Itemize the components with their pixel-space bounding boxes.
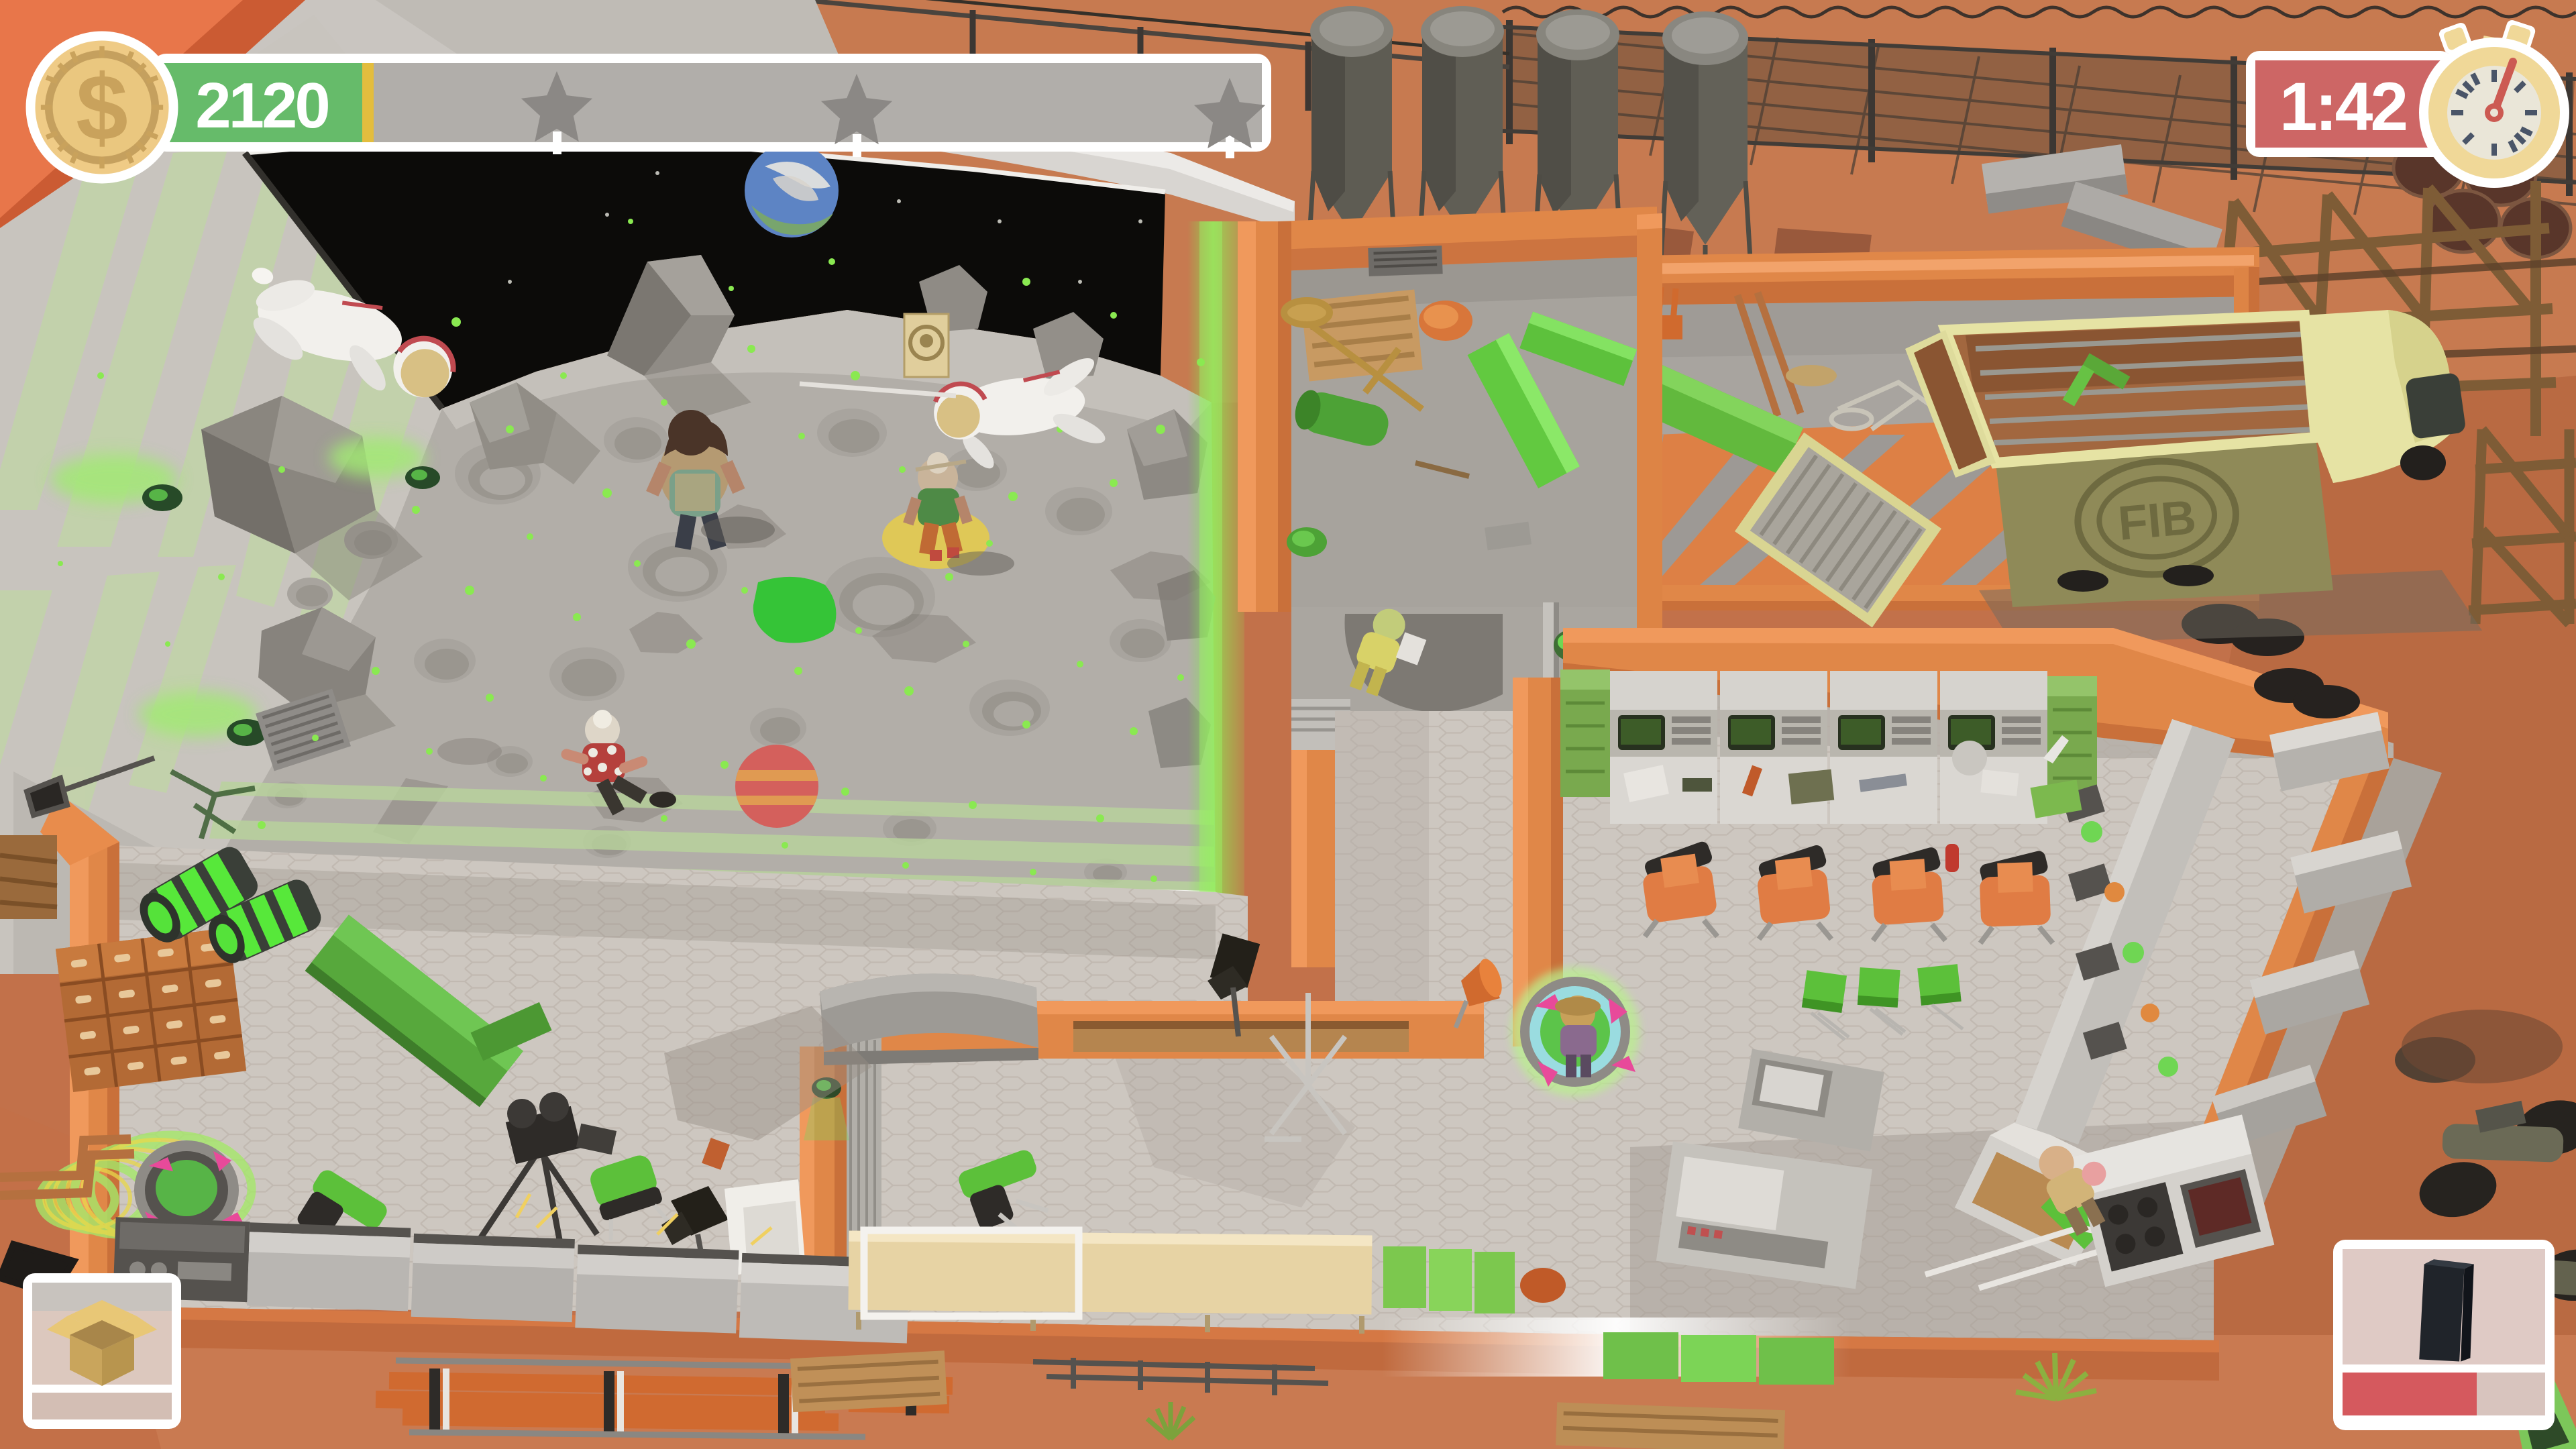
svg-text:2120: 2120 xyxy=(195,70,328,142)
svg-text:1:42: 1:42 xyxy=(2279,68,2406,145)
svg-text:$: $ xyxy=(76,55,128,160)
svg-text:FIB: FIB xyxy=(2116,490,2198,551)
